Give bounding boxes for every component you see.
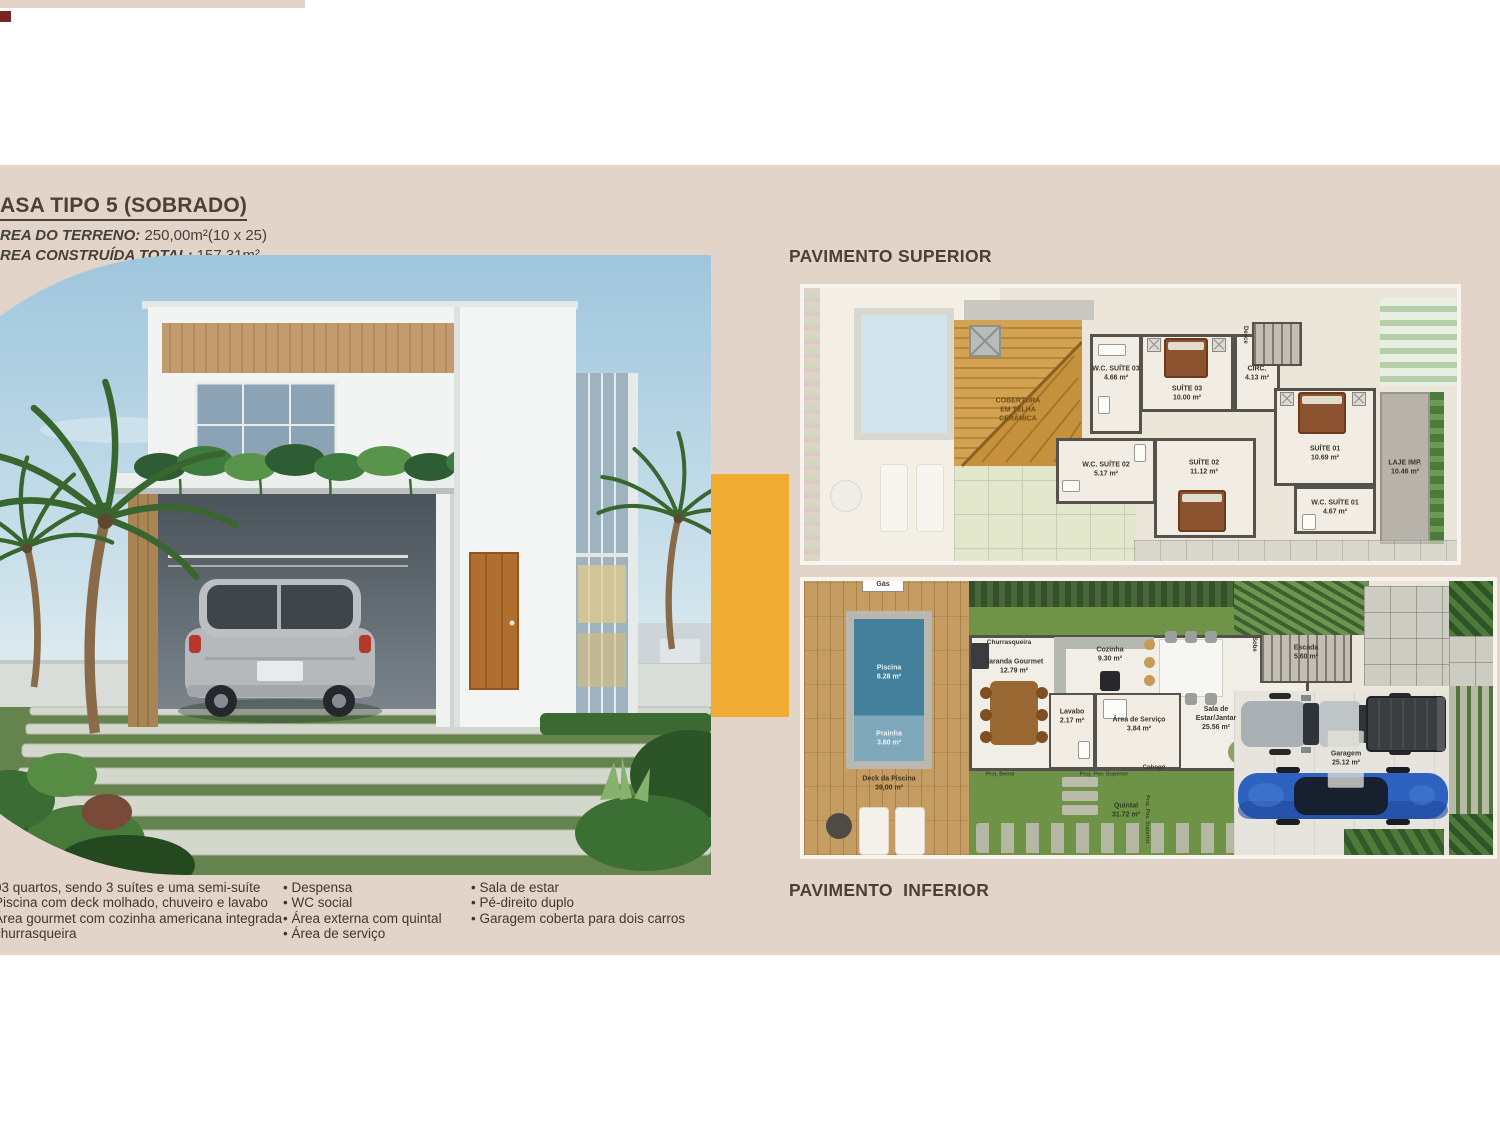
paver-pad	[1062, 791, 1098, 801]
room-label-servico: Área de Serviço3.84 m²	[1113, 698, 1166, 753]
cobogo-label: Cobogó	[1143, 765, 1166, 773]
planter-strip	[1430, 392, 1444, 544]
feature-item: WC social	[283, 895, 442, 910]
room-label-lavabo: Lavabo2.17 m²	[1060, 690, 1085, 745]
sink-icon	[1062, 480, 1080, 492]
bar-stool-icon	[1144, 657, 1155, 668]
kitchen-counter	[1054, 637, 1066, 695]
bar-stool-icon	[1144, 639, 1155, 650]
features-column-3: Sala de estar Pé-direito duplo Garagem c…	[471, 880, 685, 926]
chair-icon	[1036, 731, 1048, 743]
terrain-area-label: REA DO TERRENO:	[0, 227, 140, 244]
top-left-strip	[0, 0, 305, 8]
pool-lounger	[895, 807, 925, 855]
orange-accent-block	[711, 474, 789, 717]
inferior-plan-title: PAVIMENTO INFERIOR	[789, 880, 989, 901]
feature-item: churrasqueira	[0, 926, 282, 941]
room-label-wc2: W.C. SUÍTE 025.17 m²	[1082, 443, 1129, 498]
deck-table	[826, 813, 852, 839]
room-label-s1: SUÍTE 0110.69 m²	[1310, 427, 1340, 482]
stairs-down-label: Desce	[1242, 326, 1248, 344]
room-label-s2: SUÍTE 0211.12 m²	[1189, 441, 1219, 496]
suv-car-icon	[178, 579, 382, 723]
feature-item: Garagem coberta para dois carros	[471, 911, 685, 926]
feature-item: Área de serviço	[283, 926, 442, 941]
walkway	[1134, 540, 1457, 561]
shrubs	[1344, 829, 1444, 855]
flower-border	[804, 288, 820, 561]
room-label-cozinha: Cozinha9.30 m²	[1096, 628, 1123, 683]
room-label-laje: LAJE IMP.10.46 m²	[1388, 441, 1421, 496]
stairs-up-label: Sobe	[1251, 637, 1257, 652]
shrubs	[1449, 814, 1493, 855]
proj-beiral-label: Proj. Beiral	[985, 771, 1014, 778]
room-label-s3: SUÍTE 0310.00 m²	[1172, 367, 1202, 422]
maroon-square-decoration	[0, 11, 11, 22]
roof-label: COBERTURA EM TELHA CERÂMICA	[996, 396, 1041, 423]
page-title: ASA TIPO 5 (SOBRADO)	[0, 194, 247, 221]
feature-item: Pé-direito duplo	[471, 895, 685, 910]
floor-plan-superior: COBERTURA EM TELHA CERÂMICA W.C. SUÍTE 0…	[800, 284, 1461, 565]
chair-icon	[1205, 631, 1217, 643]
room-label-varanda: Varanda Gourmet12.79 m²	[985, 640, 1043, 695]
chair-icon	[1185, 631, 1197, 643]
shrubs	[1449, 581, 1493, 636]
room-label-garagem: Garagem25.12 m²	[1328, 731, 1364, 788]
chair-icon	[980, 709, 992, 721]
closet-icon	[1280, 392, 1294, 406]
paver-court	[1449, 636, 1493, 686]
room-label-deck: Deck da Piscina39,00 m²	[862, 757, 915, 812]
room-label-escada: Escada5.60 m²	[1294, 626, 1319, 681]
toilet-icon	[1134, 444, 1146, 462]
terrain-area-value: 250,00m²(10 x 25)	[144, 227, 267, 244]
bed-icon	[1178, 490, 1226, 532]
feature-item: Área gourmet com cozinha americana integ…	[0, 911, 282, 926]
room-label-wc1: W.C. SUÍTE 014.67 m²	[1311, 481, 1358, 536]
closet-icon	[1212, 338, 1226, 352]
house-rendering	[0, 255, 711, 875]
bar-stool-icon	[1144, 675, 1155, 686]
room-label-piscina: Piscina8.28 m²	[877, 646, 902, 701]
feature-item: Área externa com quintal	[283, 911, 442, 926]
room-label-quintal: Quintal31.72 m²	[1112, 784, 1140, 839]
grass-paver-driveway	[1449, 686, 1493, 814]
patio-table	[830, 480, 862, 512]
feature-item: Sala de estar	[471, 880, 685, 895]
brochure-page: ASA TIPO 5 (SOBRADO) REA DO TERRENO: 250…	[0, 0, 1500, 1131]
pool-lounger	[916, 464, 944, 532]
features-column-2: Despensa WC social Área externa com quin…	[283, 880, 442, 942]
closet-icon	[1352, 392, 1366, 406]
closet-icon	[1147, 338, 1161, 352]
pool-lounger	[859, 807, 889, 855]
upper-pool	[854, 308, 954, 440]
chair-icon	[980, 731, 992, 743]
floor-plan-inferior: Gás Piscina8.28 m² Prainha3.60 m² Deck d…	[800, 577, 1497, 859]
room-label-wc3: W.C. SUÍTE 034.66 m²	[1092, 347, 1139, 402]
feature-item: Piscina com deck molhado, chuveiro e lav…	[0, 895, 282, 910]
pool-lounger	[880, 464, 908, 532]
feature-item: 03 quartos, sendo 3 suítes e uma semi-su…	[0, 880, 282, 895]
paver-court	[1364, 586, 1449, 686]
superior-plan-title: PAVIMENTO SUPERIOR	[789, 246, 992, 267]
chair-icon	[1036, 709, 1048, 721]
chair-icon	[1165, 631, 1177, 643]
gas-label: Gás	[862, 577, 904, 592]
feature-item: Despensa	[283, 880, 442, 895]
front-door-icon	[470, 553, 518, 689]
proj-pav-superior-label: Proj. Pav. Superior	[1080, 771, 1129, 778]
paver-pad	[1062, 805, 1098, 815]
room-label-circ: CIRC.4.13 m²	[1245, 347, 1269, 402]
features-column-1: 03 quartos, sendo 3 suítes e uma semi-su…	[0, 880, 282, 942]
terrain-area-line: REA DO TERRENO: 250,00m²(10 x 25)	[0, 227, 267, 244]
upper-slab	[964, 300, 1094, 320]
hedge-rows	[1380, 298, 1457, 386]
proj-pav-superior-label: Proj. Pav. Superior	[1144, 795, 1150, 844]
room-label-sala: Sala de Estar/Jantar25.56 m²	[1196, 687, 1236, 751]
